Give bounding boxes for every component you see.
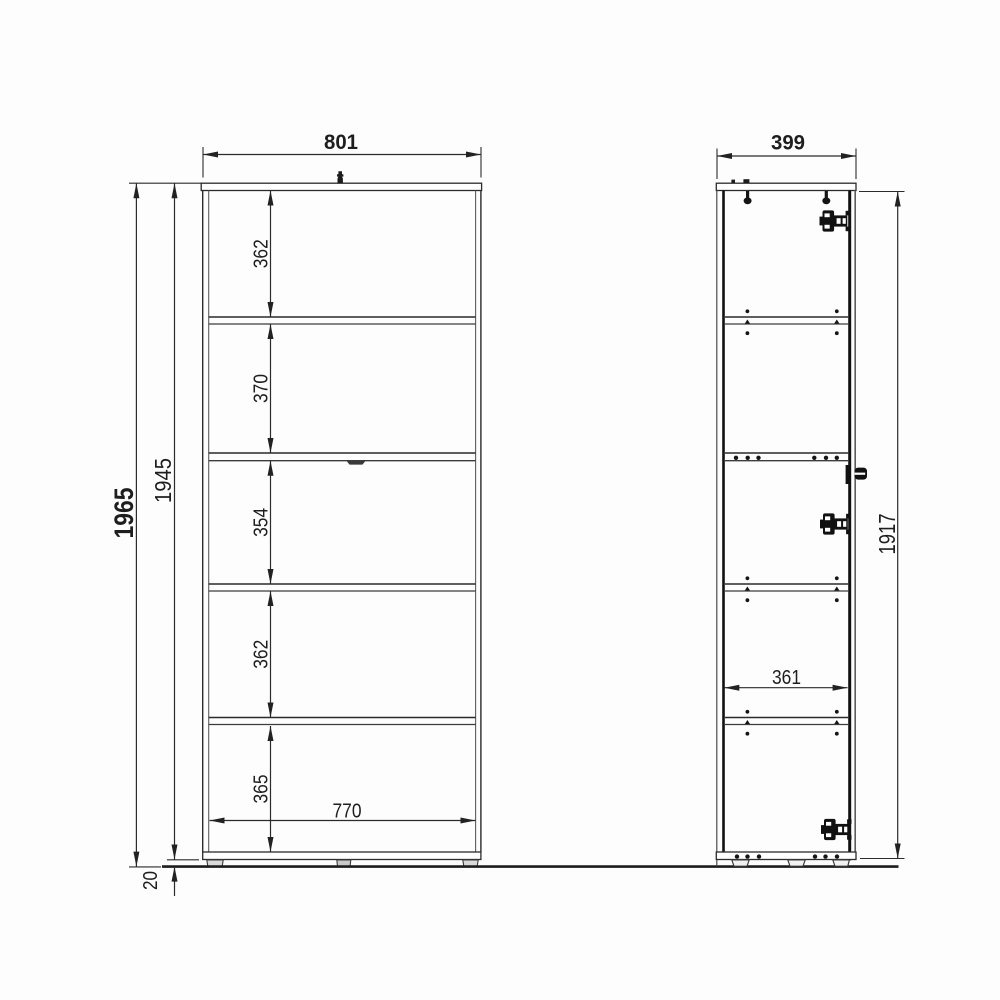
- svg-text:354: 354: [250, 508, 273, 537]
- svg-text:362: 362: [250, 239, 273, 268]
- svg-text:1917: 1917: [874, 514, 900, 555]
- svg-text:1965: 1965: [109, 488, 139, 539]
- svg-text:370: 370: [250, 374, 273, 403]
- svg-text:770: 770: [333, 799, 362, 822]
- svg-text:399: 399: [771, 132, 805, 155]
- svg-text:801: 801: [324, 131, 358, 154]
- svg-text:361: 361: [772, 666, 801, 689]
- svg-text:362: 362: [250, 640, 273, 669]
- svg-text:365: 365: [250, 775, 273, 804]
- svg-text:20: 20: [139, 871, 162, 890]
- svg-text:1945: 1945: [150, 458, 176, 503]
